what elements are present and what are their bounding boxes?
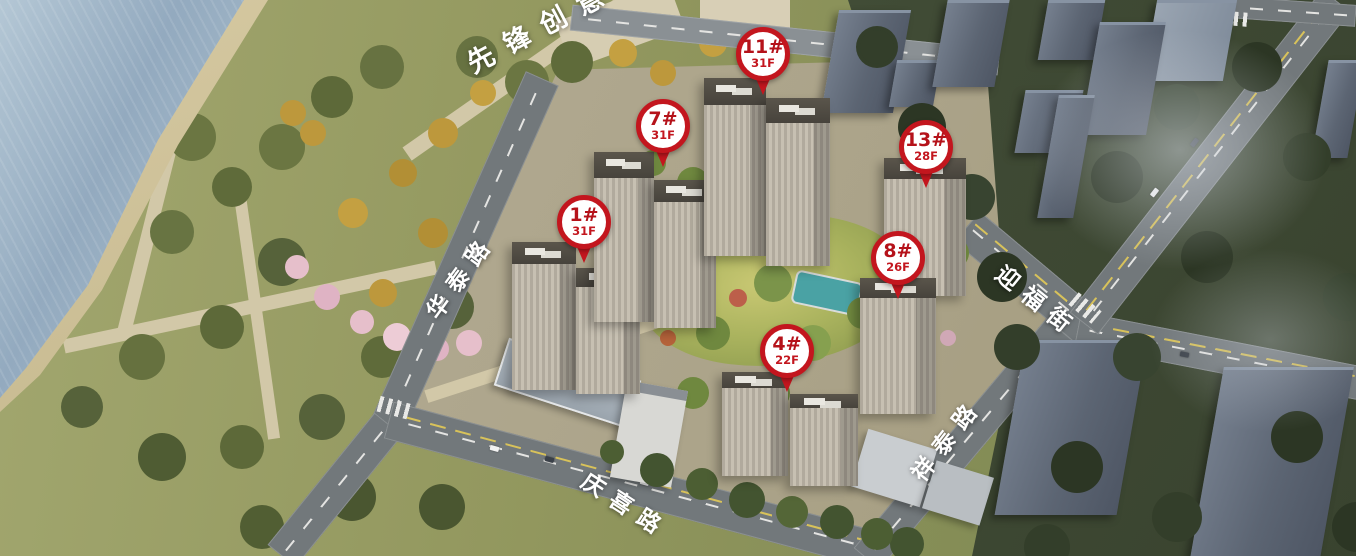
pin-floor-count: 31F (572, 225, 596, 239)
road-huatai-south-surface (268, 413, 403, 556)
building-pin-8[interactable]: 8# 26F (871, 231, 925, 327)
building-pin-4[interactable]: 4# 22F (760, 324, 814, 420)
pin-floor-count: 26F (886, 261, 910, 275)
pin-circle: 1# 31F (557, 195, 611, 249)
building-pin-13[interactable]: 13# 28F (899, 120, 953, 216)
pin-building-number: 8# (883, 242, 912, 261)
building-pin-11[interactable]: 11# 31F (736, 27, 790, 123)
pin-circle: 11# 31F (736, 27, 790, 81)
pin-building-number: 13# (905, 131, 947, 150)
masterplan-aerial-view: 先锋创意 华泰路 庆喜路 祥泰路 迎福街 1# 31F 4# 22F 7# 31… (0, 0, 1356, 556)
pin-floor-count: 31F (751, 57, 775, 71)
blossom-tree-cluster (285, 255, 309, 279)
building-pin-1[interactable]: 1# 31F (557, 195, 611, 291)
pin-circle: 8# 26F (871, 231, 925, 285)
city-tree-cluster (860, 30, 894, 64)
pin-floor-count: 22F (775, 354, 799, 368)
pin-building-number: 4# (772, 335, 801, 354)
pin-building-number: 7# (648, 110, 677, 129)
pin-circle: 4# 22F (760, 324, 814, 378)
tower-11b (766, 98, 830, 266)
street-tree-row (600, 440, 624, 464)
pin-building-number: 1# (569, 206, 598, 225)
building-pin-7[interactable]: 7# 31F (636, 99, 690, 195)
pin-floor-count: 28F (914, 150, 938, 164)
pin-circle: 13# 28F (899, 120, 953, 174)
pin-floor-count: 31F (651, 129, 675, 143)
pin-circle: 7# 31F (636, 99, 690, 153)
pin-building-number: 11# (742, 38, 784, 57)
autumn-tree-cluster (280, 100, 306, 126)
